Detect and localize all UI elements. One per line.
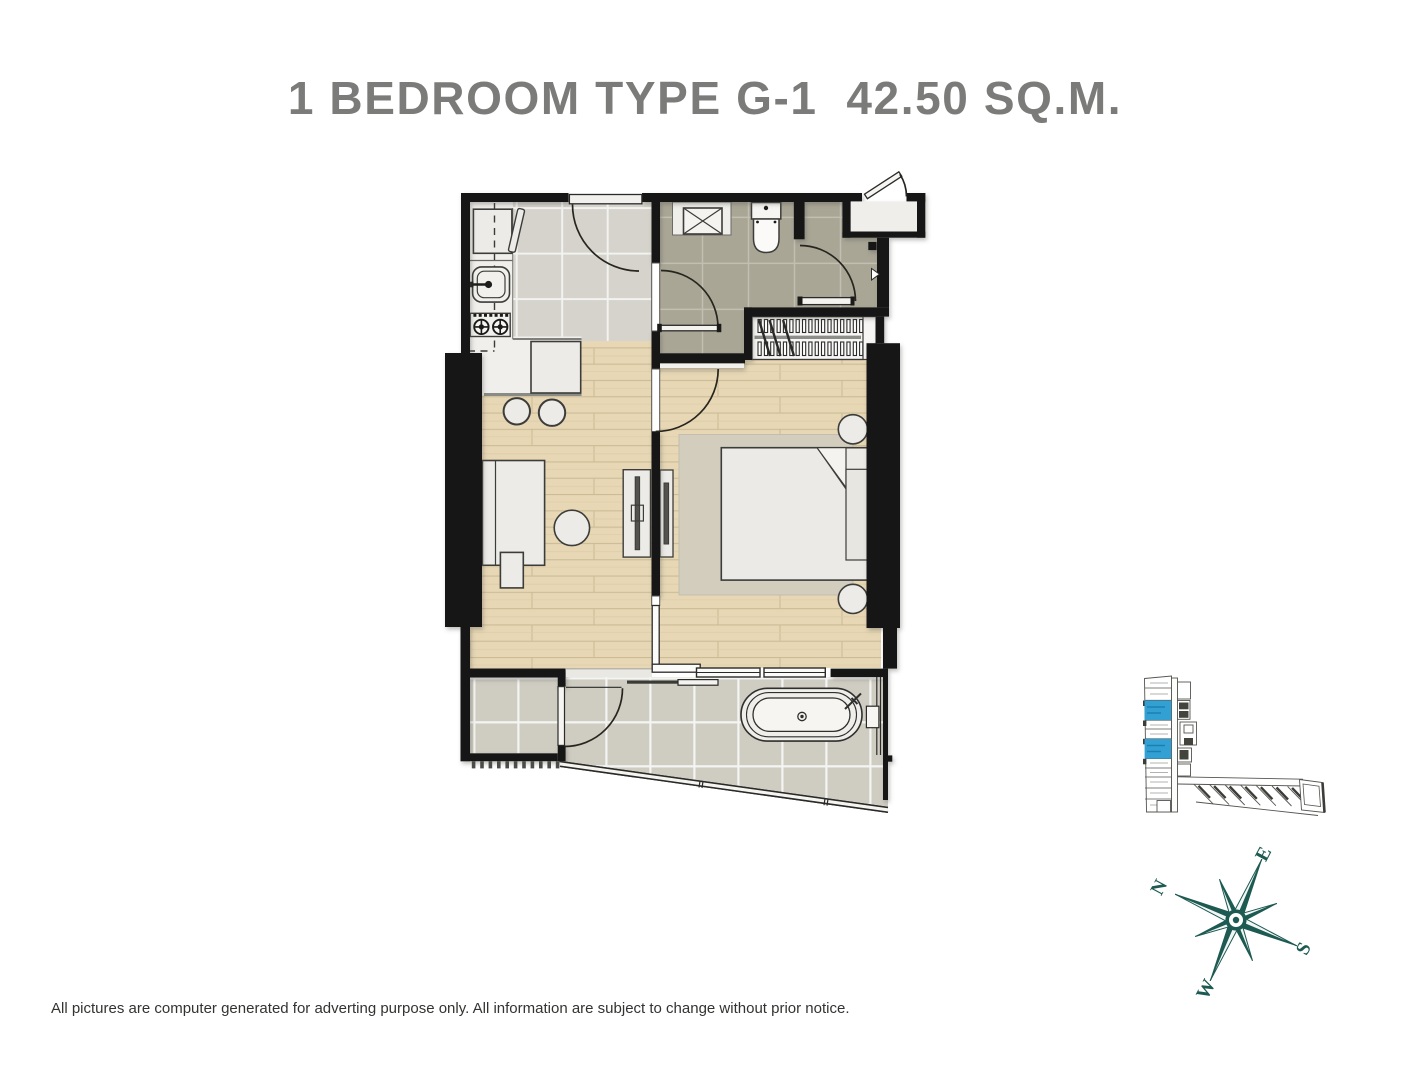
svg-text:All pictures are computer gene: All pictures are computer generated for … xyxy=(51,1000,850,1017)
svg-text:N: N xyxy=(1147,876,1172,898)
svg-text:E: E xyxy=(1252,844,1277,865)
svg-text:W: W xyxy=(1193,976,1221,1004)
svg-text:1 BEDROOM TYPE G-1 42.50 SQ.M: 1 BEDROOM TYPE G-1 42.50 SQ.M. xyxy=(288,72,1122,124)
svg-text:S: S xyxy=(1292,939,1316,959)
